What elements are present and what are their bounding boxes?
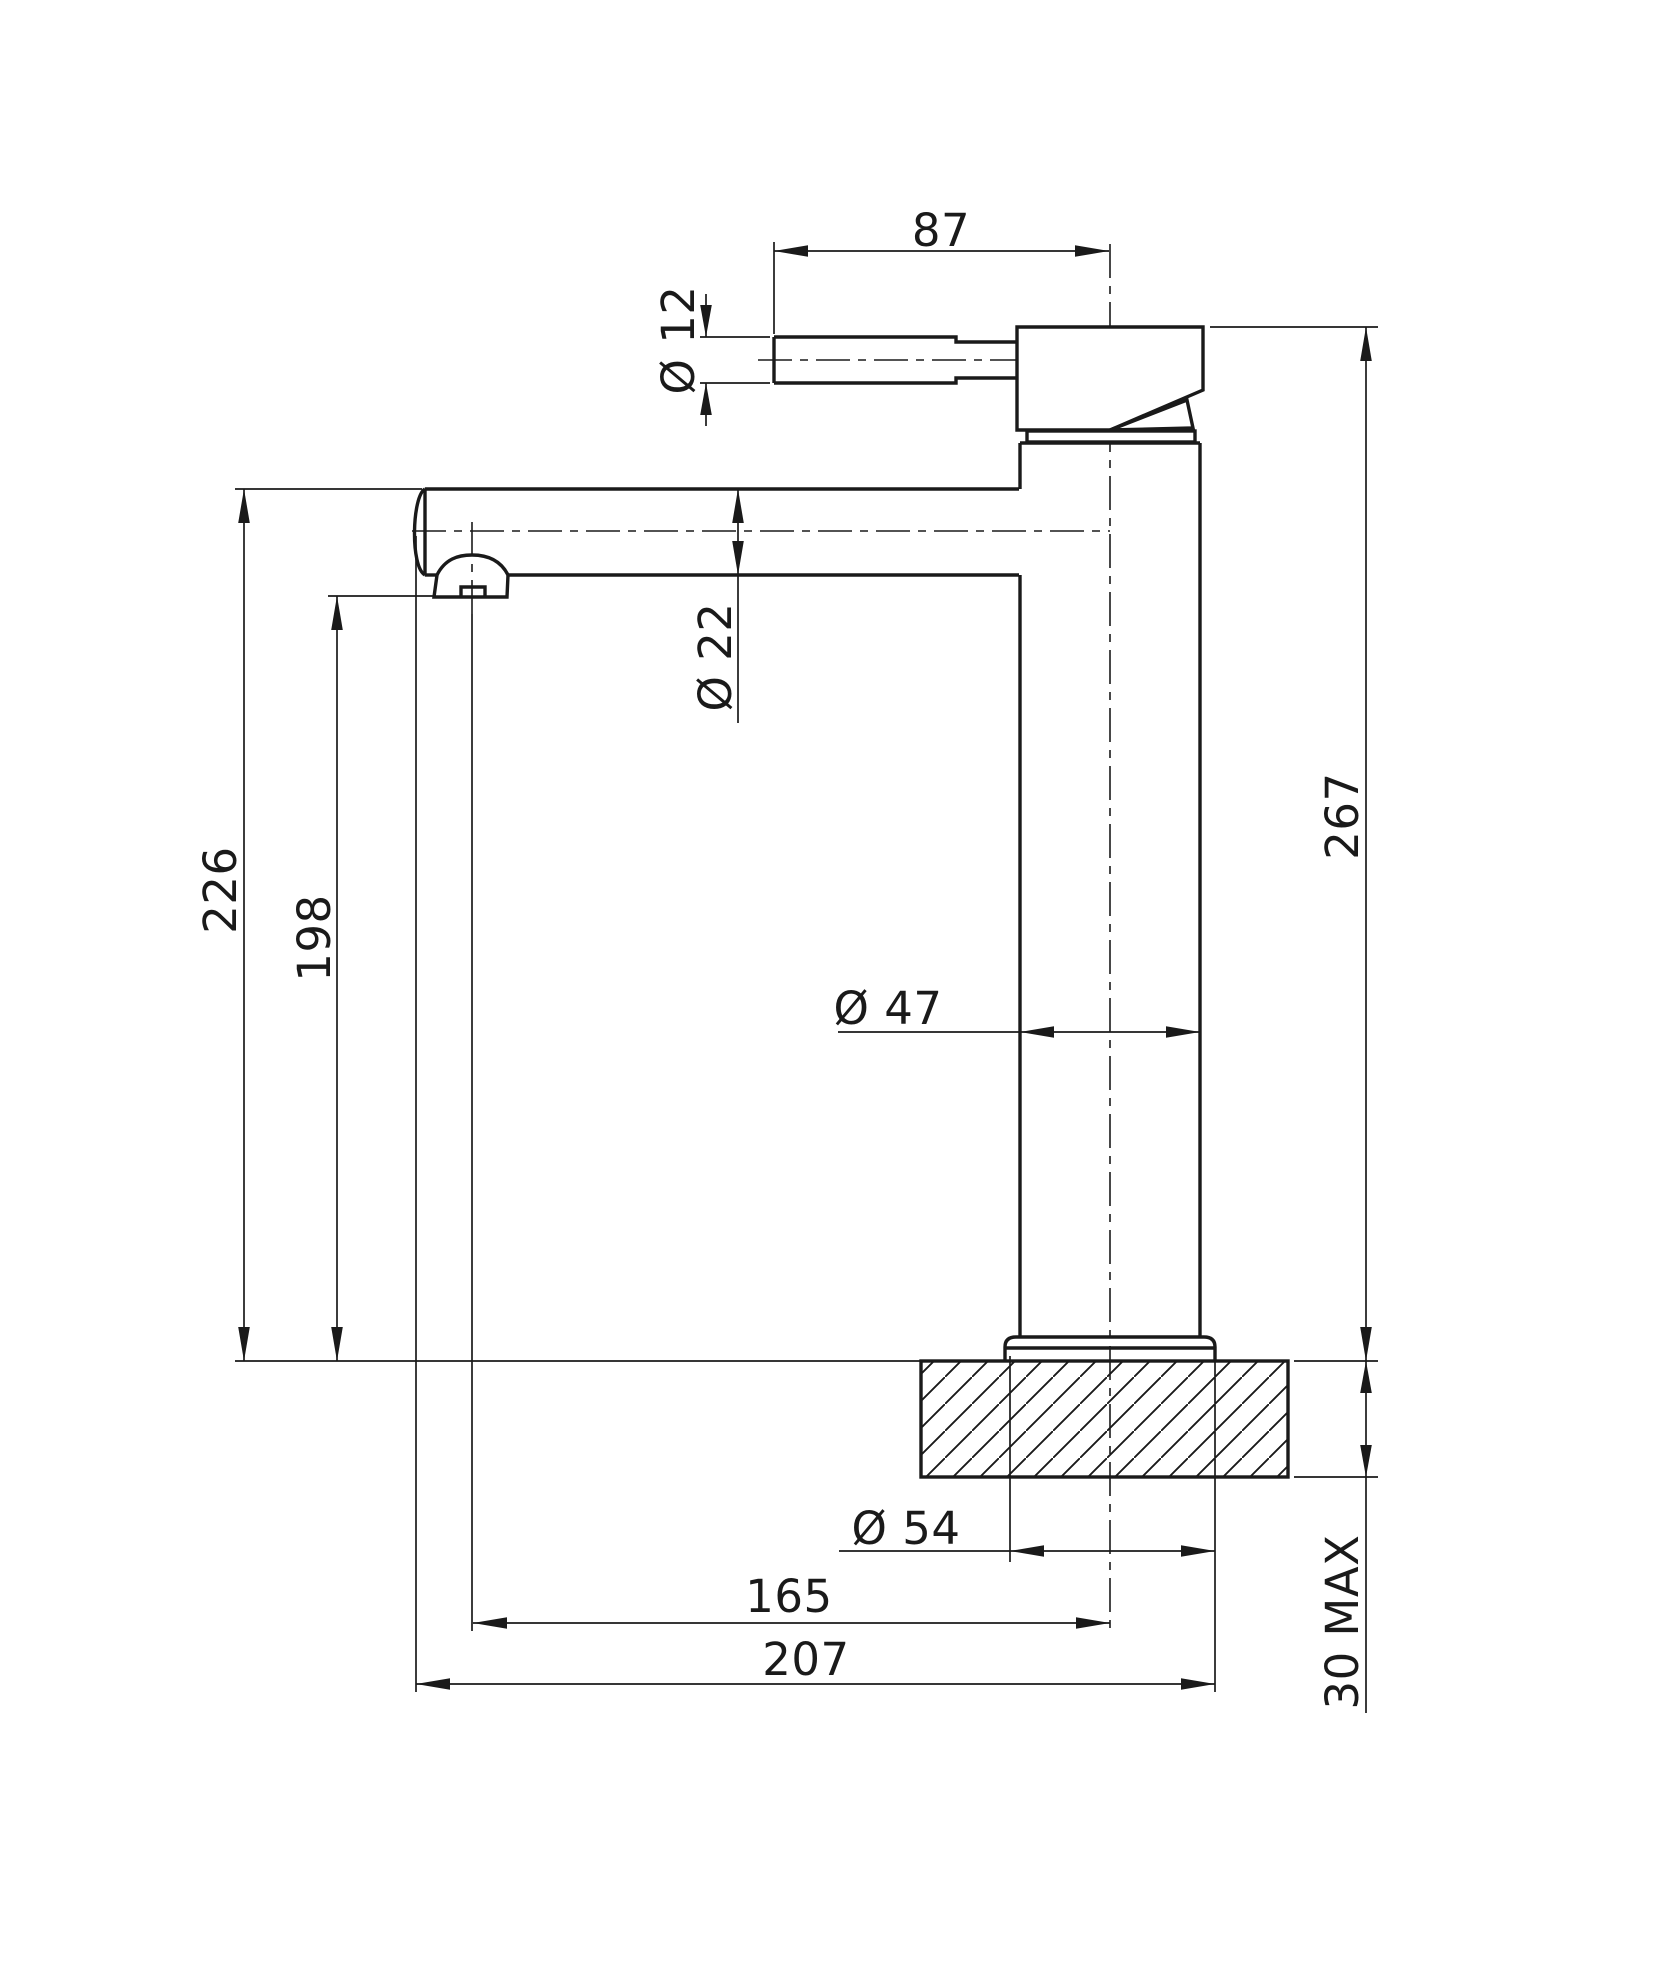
dim-label-spout-outlet-height: 198 bbox=[288, 894, 341, 981]
arrow-87-right bbox=[1075, 245, 1109, 257]
mounting-deck bbox=[921, 1361, 1288, 1477]
arrow-207-right bbox=[1181, 1678, 1215, 1690]
arrow-47-left bbox=[1020, 1026, 1054, 1038]
arrow-165-left bbox=[473, 1617, 507, 1629]
arrow-165-right bbox=[1076, 1617, 1110, 1629]
technical-drawing-sheet: 87 Ø 12 Ø 22 226 198 267 Ø 47 Ø 54 165 2… bbox=[0, 0, 1656, 1984]
dim-label-spout-diameter: Ø 22 bbox=[689, 603, 742, 712]
cartridge-collar bbox=[1027, 431, 1195, 442]
arrow-226-top bbox=[238, 489, 250, 523]
arrow-198-bottom bbox=[331, 1327, 343, 1361]
dim-label-base-diameter: Ø 54 bbox=[852, 1502, 961, 1555]
dim-label-body-diameter: Ø 47 bbox=[834, 982, 943, 1035]
arrow-22-top bbox=[732, 489, 744, 523]
arrow-30max-bottom bbox=[1360, 1445, 1372, 1477]
dim-label-spout-reach: 165 bbox=[745, 1570, 832, 1623]
arrow-30max-top bbox=[1360, 1361, 1372, 1393]
arrow-54-right bbox=[1181, 1545, 1215, 1557]
aerator bbox=[434, 555, 508, 597]
handle-lever-top bbox=[774, 337, 1018, 342]
faucet-outline bbox=[414, 327, 1288, 1477]
dim-label-overall-height: 267 bbox=[1316, 772, 1369, 859]
faucet-technical-drawing: 87 Ø 12 Ø 22 226 198 267 Ø 47 Ø 54 165 2… bbox=[0, 0, 1656, 1984]
dim-label-handle-length: 87 bbox=[912, 204, 970, 257]
arrow-198-top bbox=[331, 596, 343, 630]
arrow-87-left bbox=[774, 245, 808, 257]
dimension-lines bbox=[235, 242, 1378, 1713]
arrow-226-bottom bbox=[238, 1327, 250, 1361]
arrow-267-top bbox=[1360, 327, 1372, 361]
dim-label-spout-top-height: 226 bbox=[194, 846, 247, 933]
arrow-47-right bbox=[1166, 1026, 1200, 1038]
handle-lever-bottom bbox=[774, 378, 1018, 383]
dim-label-handle-diameter: Ø 12 bbox=[652, 286, 705, 395]
arrow-267-bottom bbox=[1360, 1327, 1372, 1361]
dim-label-overall-reach: 207 bbox=[762, 1633, 849, 1686]
arrow-22-bottom bbox=[732, 541, 744, 575]
arrow-54-left bbox=[1010, 1545, 1044, 1557]
arrow-207-left bbox=[416, 1678, 450, 1690]
handle-cap bbox=[1017, 327, 1203, 442]
dim-label-deck-thickness: 30 MAX bbox=[1316, 1534, 1369, 1709]
spout bbox=[414, 489, 1019, 575]
